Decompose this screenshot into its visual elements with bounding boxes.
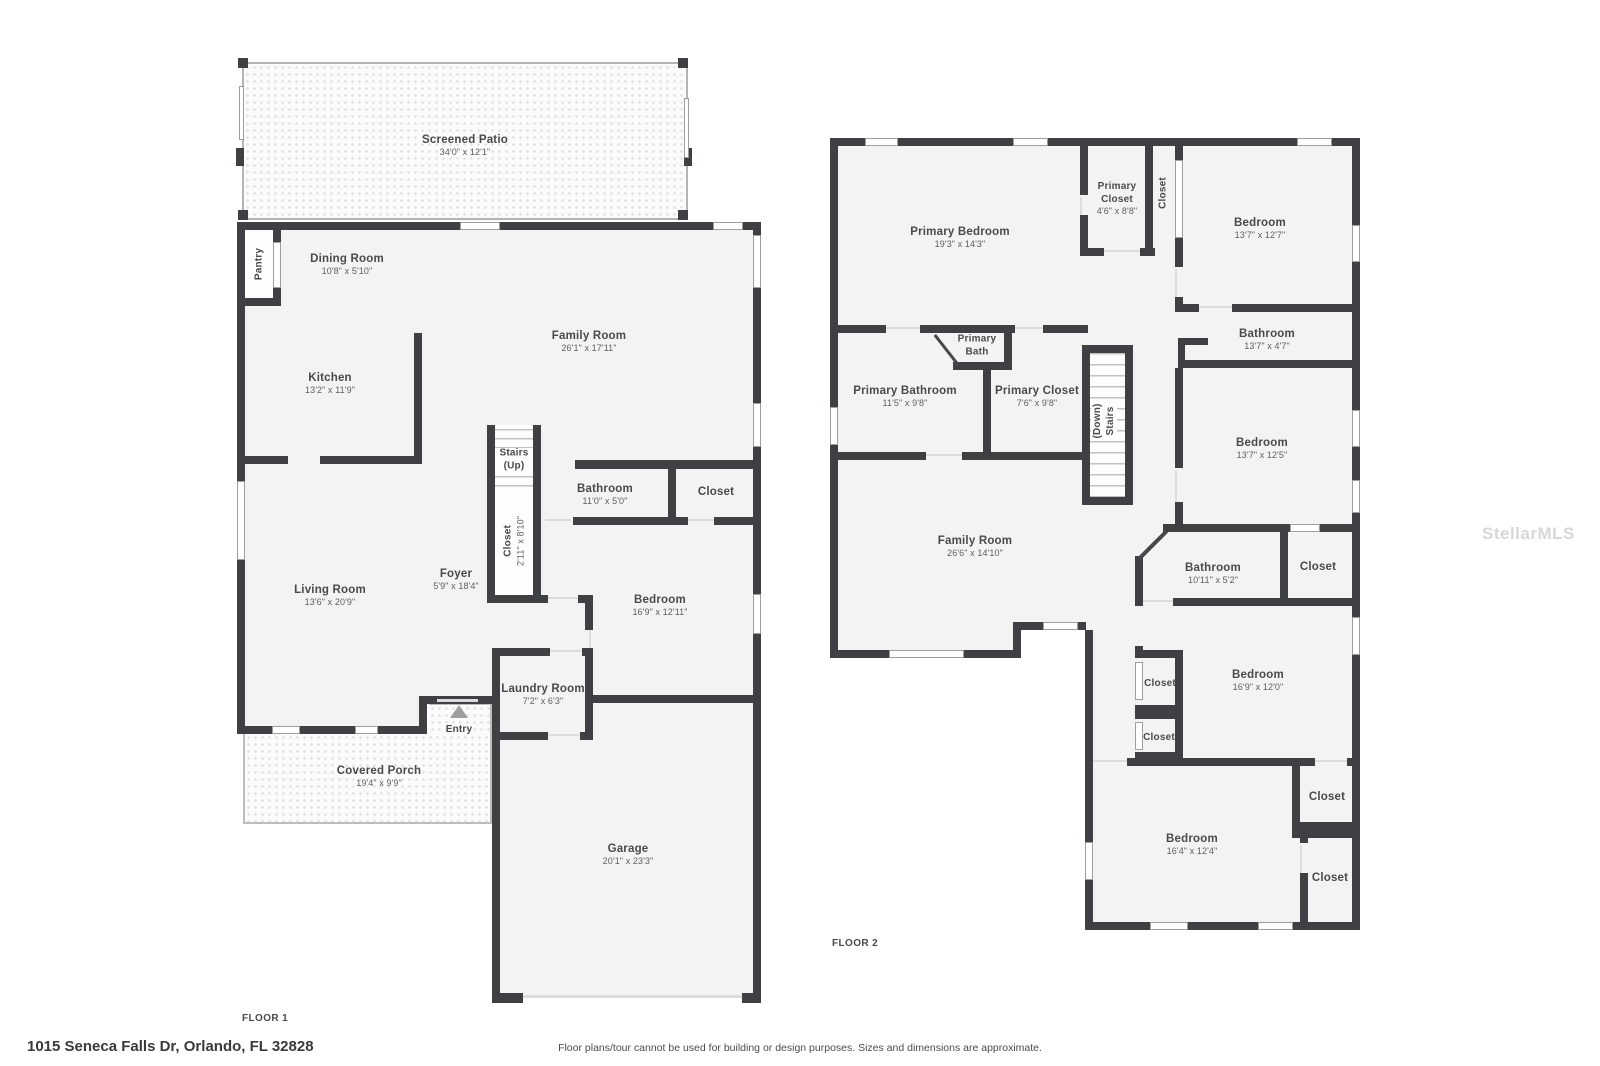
wall-segment: [492, 993, 523, 1003]
room-label-closet-foyer: Closet 2'11" x 8'10": [503, 516, 526, 566]
room-label-family-room-1: Family Room 26'1" x 17'11": [552, 329, 626, 355]
door-threshold: [886, 327, 920, 329]
room-name: Laundry Room: [501, 682, 585, 696]
room-dims: 2'11" x 8'10": [516, 516, 526, 566]
patio-screen-slot: [684, 98, 689, 158]
window: [1135, 662, 1143, 700]
room-label-stairs-down: (Down) Stairs: [1091, 401, 1117, 440]
door-threshold: [1104, 250, 1140, 252]
stellar-mls-watermark: StellarMLS: [1482, 524, 1575, 544]
room-name: Closet: [1143, 732, 1175, 745]
room-name: Bathroom: [577, 482, 633, 496]
door-threshold: [437, 699, 478, 702]
wall-segment: [1280, 532, 1288, 606]
room-dims: 5'9" x 18'4": [433, 582, 479, 593]
room-label-closet-a: Closet: [1144, 678, 1176, 691]
window: [1085, 842, 1093, 880]
wall-segment: [830, 138, 838, 658]
room-label-family-room-2: Family Room 26'6" x 14'10": [938, 534, 1012, 560]
wall-segment: [1173, 598, 1288, 606]
wall-segment: [1347, 758, 1360, 766]
wall-segment: [1183, 304, 1199, 312]
room-label-bathroom-right: Bathroom 13'7" x 4'7": [1239, 327, 1295, 353]
wall-segment: [237, 456, 288, 464]
room-label-bedroom-mid-right: Bedroom 13'7" x 12'5": [1236, 436, 1288, 462]
wall-segment: [1085, 630, 1093, 930]
room-name: Bedroom: [1166, 832, 1218, 846]
room-name: Garage: [603, 842, 654, 856]
patio-screen-slot: [239, 86, 244, 140]
property-address: 1015 Seneca Falls Dr, Orlando, FL 32828: [27, 1038, 314, 1055]
room-label-primary-closet-small: Primary Closet 4'6" x 8'8": [1088, 181, 1146, 217]
room-label-bedroom-top-right: Bedroom 13'7" x 12'7": [1234, 216, 1286, 242]
window: [753, 594, 761, 634]
wall-segment: [273, 230, 281, 242]
room-name: Closet: [1312, 871, 1348, 885]
door-threshold: [1175, 470, 1177, 502]
wall-segment: [1013, 622, 1021, 658]
room-name: Bedroom: [632, 593, 687, 607]
door-threshold: [1080, 197, 1082, 215]
door-threshold: [1143, 600, 1173, 602]
room-dims: 26'6" x 14'10": [938, 549, 1012, 560]
room-label-living-room: Living Room 13'6" x 20'9": [294, 583, 366, 609]
room-label-closet-hall: Closet: [698, 485, 734, 499]
wall-segment: [714, 517, 753, 525]
room-dims: (Down): [1092, 403, 1103, 438]
wall-segment: [1175, 238, 1183, 267]
patio-post: [236, 148, 244, 166]
wall-segment: [1082, 497, 1133, 505]
room-label-bathroom-1: Bathroom 11'0" x 5'0": [577, 482, 633, 508]
room-label-primary-bath: Primary Bath: [948, 334, 1006, 359]
patio-post: [238, 58, 248, 68]
room-dims: 13'2" x 11'9": [305, 386, 355, 397]
room-label-laundry-room: Laundry Room 7'2" x 6'3": [501, 682, 585, 708]
room-name: Closet: [698, 485, 734, 499]
door-threshold: [545, 519, 571, 521]
patio-post: [678, 210, 688, 220]
wall-segment: [585, 648, 593, 740]
room-dims: 13'7" x 4'7": [1239, 342, 1295, 353]
room-dims: 16'9" x 12'0": [1232, 683, 1284, 694]
wall-segment: [1043, 325, 1088, 333]
room-label-bedroom-bottom: Bedroom 16'4" x 12'4": [1166, 832, 1218, 858]
window: [713, 222, 743, 230]
room-name: Bedroom: [1236, 436, 1288, 450]
wall-segment: [1135, 598, 1143, 606]
wall-segment: [1292, 766, 1300, 830]
wall-segment: [1080, 248, 1104, 256]
wall-segment: [593, 695, 761, 703]
window: [1043, 622, 1078, 630]
wall-segment: [578, 595, 593, 603]
room-dims: 26'1" x 17'11": [552, 344, 626, 355]
window: [1290, 524, 1320, 532]
room-name: Kitchen: [305, 371, 355, 385]
wall-segment: [1135, 752, 1183, 760]
room-dims: 11'0" x 5'0": [577, 497, 633, 508]
room-label-closet-top: Closet: [1158, 177, 1169, 209]
room-label-primary-bedroom: Primary Bedroom 19'3" x 14'3": [910, 225, 1010, 251]
room-name: Closet: [1144, 678, 1176, 691]
wall-segment: [487, 595, 548, 603]
patio-post: [678, 58, 688, 68]
wall-segment: [983, 370, 991, 460]
wall-segment: [492, 732, 548, 740]
room-label-primary-bathroom: Primary Bathroom 11'5" x 9'8": [853, 384, 957, 410]
window: [865, 138, 898, 146]
room-name: Living Room: [294, 583, 366, 597]
wall-segment: [1082, 345, 1133, 353]
window: [237, 481, 245, 560]
wall-segment: [1178, 338, 1185, 368]
door-threshold: [523, 995, 742, 998]
room-label-garage: Garage 20'1" x 23'3": [603, 842, 654, 868]
room-name: Closet: [1158, 177, 1169, 209]
room-floor: [1021, 452, 1086, 630]
window: [1352, 480, 1360, 513]
room-name: Pantry: [254, 248, 265, 280]
room-name: Foyer: [433, 567, 479, 581]
wall-segment: [1175, 650, 1183, 713]
wall-segment: [1085, 922, 1360, 930]
window: [1258, 922, 1293, 930]
wall-segment: [830, 325, 886, 333]
room-name: Closet: [1309, 790, 1345, 804]
wall-segment: [1135, 705, 1183, 712]
window: [1150, 922, 1188, 930]
room-label-kitchen: Kitchen 13'2" x 11'9": [305, 371, 355, 397]
room-name: Bedroom: [1234, 216, 1286, 230]
room-name: Bathroom: [1185, 561, 1241, 575]
wall-segment: [1175, 368, 1183, 468]
wall-segment: [668, 469, 676, 521]
wall-segment: [1292, 822, 1360, 838]
room-dims: 11'5" x 9'8": [853, 399, 957, 410]
wall-segment: [1232, 304, 1360, 312]
room-dims: 13'7" x 12'5": [1236, 451, 1288, 462]
room-floor: [245, 697, 423, 726]
wall-segment: [1183, 360, 1360, 368]
room-name: Primary Bedroom: [910, 225, 1010, 239]
room-label-primary-closet: Primary Closet 7'6" x 9'8": [995, 384, 1079, 410]
room-label-pantry: Pantry: [254, 248, 265, 280]
window: [1297, 138, 1332, 146]
disclaimer-text: Floor plans/tour cannot be used for buil…: [558, 1042, 1042, 1054]
stair-treads: [495, 429, 533, 448]
wall-segment: [237, 726, 427, 734]
room-dims: 19'4" x 9'9": [337, 779, 421, 790]
room-name: Primary Closet: [995, 384, 1079, 398]
room-name: Family Room: [552, 329, 626, 343]
room-name: Stairs: [500, 448, 529, 461]
floorplan-canvas: Screened Patio 34'0" x 12'1" Pantry Dini…: [0, 0, 1600, 1066]
door-threshold: [1015, 327, 1043, 329]
window: [355, 726, 378, 734]
wall-segment: [414, 333, 422, 464]
room-name: Primary Bathroom: [853, 384, 957, 398]
room-label-closet-d: Closet: [1312, 871, 1348, 885]
window: [1352, 617, 1360, 655]
wall-segment: [1145, 146, 1153, 248]
room-dims: 10'8" x 5'10": [310, 267, 384, 278]
wall-segment: [1080, 146, 1088, 195]
wall-segment: [1085, 758, 1093, 766]
door-threshold: [589, 630, 591, 648]
room-label-foyer: Foyer 5'9" x 18'4": [433, 567, 479, 593]
door-threshold: [1093, 760, 1127, 762]
window: [1175, 160, 1183, 238]
door-threshold: [1315, 760, 1347, 762]
door-threshold: [1300, 845, 1302, 873]
window: [1013, 138, 1048, 146]
window: [1135, 722, 1143, 750]
door-threshold: [550, 650, 582, 652]
door-threshold: [1175, 269, 1177, 297]
floor1-caption: FLOOR 1: [242, 1013, 288, 1024]
room-label-dining-room: Dining Room 10'8" x 5'10": [310, 252, 384, 278]
wall-segment: [273, 288, 281, 298]
room-dims: 10'11" x 5'2": [1185, 576, 1241, 587]
room-label-covered-porch: Covered Porch 19'4" x 9'9": [337, 764, 421, 790]
wall-segment: [533, 425, 541, 603]
room-dims: 4'6" x 8'8": [1088, 206, 1146, 217]
room-dims: 20'1" x 23'3": [603, 857, 654, 868]
door-threshold: [1199, 306, 1232, 308]
room-dims: 16'4" x 12'4": [1166, 847, 1218, 858]
wall-segment: [953, 362, 1012, 370]
wall-segment: [573, 517, 688, 525]
room-name: Bathroom: [1239, 327, 1295, 341]
wall-segment: [582, 648, 593, 656]
window: [830, 407, 838, 445]
floorplan-page: { "address": "1015 Seneca Falls Dr, Orla…: [0, 0, 1600, 1066]
wall-segment: [237, 298, 281, 306]
room-name: Stairs: [1105, 406, 1116, 435]
room-name: Entry: [446, 724, 473, 737]
room-name: Covered Porch: [337, 764, 421, 778]
door-threshold: [548, 597, 578, 599]
wall-segment: [1175, 297, 1183, 312]
room-label-bathroom-mid: Bathroom 10'11" x 5'2": [1185, 561, 1241, 587]
room-name: Bedroom: [1232, 668, 1284, 682]
room-dims: 13'7" x 12'7": [1234, 231, 1286, 242]
window: [460, 222, 500, 230]
room-dims: 34'0" x 12'1": [422, 148, 508, 159]
door-threshold: [688, 519, 714, 521]
wall-segment: [1300, 838, 1308, 843]
wall-segment: [1163, 524, 1290, 532]
room-label-bedroom-right: Bedroom 16'9" x 12'0": [1232, 668, 1284, 694]
room-name: Closet: [503, 525, 514, 557]
room-label-closet-c: Closet: [1309, 790, 1345, 804]
wall-segment: [830, 138, 1360, 146]
room-dims: 19'3" x 14'3": [910, 240, 1010, 251]
room-label-closet-b: Closet: [1143, 732, 1175, 745]
room-name: Family Room: [938, 534, 1012, 548]
window: [889, 650, 964, 658]
door-threshold: [926, 454, 962, 456]
wall-segment: [830, 452, 926, 460]
window: [753, 403, 761, 447]
room-label-stairs-up: Stairs (Up): [500, 448, 529, 473]
wall-segment: [1288, 598, 1360, 606]
room-dims: 16'9" x 12'11": [632, 608, 687, 619]
room-label-closet-mid: Closet: [1300, 560, 1336, 574]
room-floor: [1086, 452, 1352, 922]
room-name: Screened Patio: [422, 133, 508, 147]
window: [753, 235, 761, 288]
wall-segment: [492, 648, 550, 656]
wall-segment: [742, 993, 761, 1003]
wall-segment: [1125, 345, 1133, 505]
wall-segment: [1140, 248, 1155, 256]
room-label-screened-patio: Screened Patio 34'0" x 12'1": [422, 133, 508, 159]
wall-segment: [575, 460, 761, 469]
wall-segment: [1300, 873, 1308, 922]
room-label-bedroom-1: Bedroom 16'9" x 12'11": [632, 593, 687, 619]
wall-segment: [1082, 345, 1090, 505]
room-label-entry: Entry: [446, 724, 473, 737]
wall-segment: [320, 456, 422, 464]
room-dims: (Up): [500, 460, 529, 473]
room-name: Closet: [1300, 560, 1336, 574]
room-dims: 7'6" x 9'8": [995, 399, 1079, 410]
room-name: Primary Closet: [1088, 181, 1146, 206]
room-name: Primary Bath: [948, 334, 1006, 359]
room-dims: 7'2" x 6'3": [501, 697, 585, 708]
room-dims: 13'6" x 20'9": [294, 598, 366, 609]
wall-segment: [580, 732, 593, 740]
wall-segment: [492, 696, 500, 1003]
room-name: Dining Room: [310, 252, 384, 266]
window: [1352, 410, 1360, 447]
wall-segment: [920, 325, 933, 333]
stair-treads: [495, 476, 533, 492]
wall-segment: [1080, 215, 1088, 248]
patio-post: [238, 210, 248, 220]
wall-segment: [585, 603, 593, 630]
window: [1352, 225, 1360, 262]
wall-segment: [1175, 146, 1183, 160]
wall-segment: [933, 325, 1015, 333]
entry-arrow-icon: [450, 705, 468, 718]
floor2-caption: FLOOR 2: [832, 938, 878, 949]
wall-segment: [962, 452, 1088, 460]
wall-segment: [487, 425, 495, 603]
door-threshold: [548, 734, 580, 736]
window: [272, 726, 300, 734]
wall-segment: [1320, 524, 1360, 532]
window: [273, 242, 281, 288]
